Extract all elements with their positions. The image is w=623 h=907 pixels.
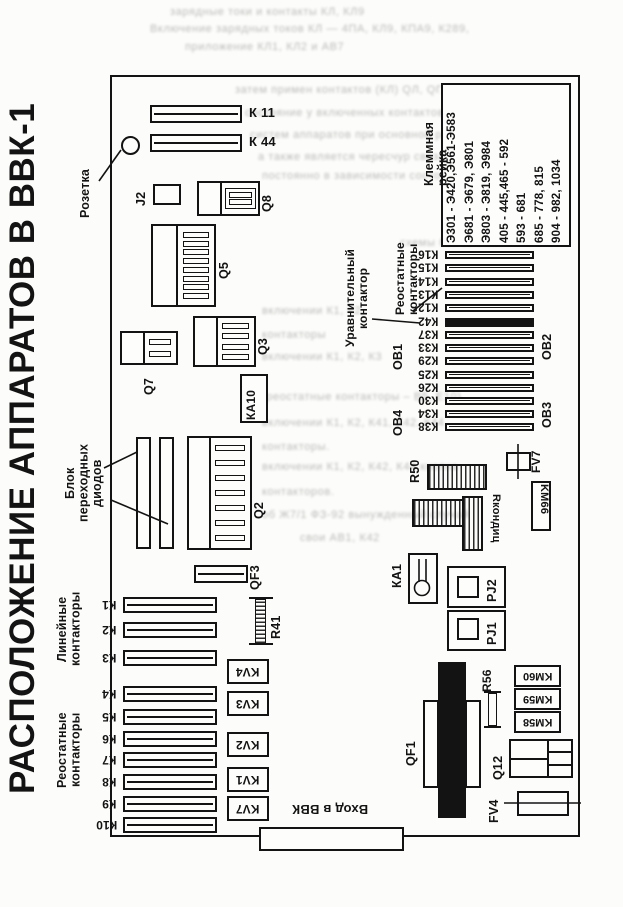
q2-label: Q2 xyxy=(253,493,269,519)
bar-label-k4: К4 xyxy=(97,687,121,700)
kv7-relay: KV7 xyxy=(227,796,269,821)
contactor-bar-k5 xyxy=(123,709,217,725)
r56-label: R56 xyxy=(481,664,498,692)
bar-label-k8: К8 xyxy=(97,775,121,788)
contactor-bar-k38 xyxy=(445,423,534,431)
qf3-component xyxy=(194,565,248,583)
bar-label-k3: К3 xyxy=(97,651,121,664)
pj1-inner-square xyxy=(457,618,479,640)
contactor-k11-bar xyxy=(150,105,242,123)
contactor-bar-k12 xyxy=(445,304,534,312)
rheostat-contactors-left-label: Реостатные контакторы xyxy=(56,702,94,798)
kv4-relay: KV4 xyxy=(227,659,269,684)
contactor-bar-k3 xyxy=(123,650,217,666)
vhod-v-bbk-block xyxy=(259,827,404,851)
bar-label-k6: К6 xyxy=(97,732,121,745)
r50-label: R50 xyxy=(409,457,426,483)
contactor-bar-k2 xyxy=(123,622,217,638)
bar-label-k5: К5 xyxy=(97,710,121,723)
pj1-label: PJ1 xyxy=(486,615,502,645)
r41-resistor xyxy=(255,599,266,644)
ob3-label: ОВ3 xyxy=(541,394,558,428)
terminal-rail-line: Э681 - Э679, Э801 xyxy=(464,87,482,243)
q3-label: Q3 xyxy=(257,329,273,355)
bar-label-k2: К2 xyxy=(97,623,121,636)
r41-label: R41 xyxy=(270,609,286,639)
r41-cap xyxy=(249,643,273,645)
contactor-bar-k29 xyxy=(445,357,534,365)
qf1-breaker-body xyxy=(438,662,466,818)
ka10-label: КА10 xyxy=(245,377,261,420)
ob4-label: ОВ4 xyxy=(392,402,409,436)
contactor-bar-k7 xyxy=(123,752,217,768)
bar-label-k34: К34 xyxy=(413,406,443,418)
contactor-bar-k37 xyxy=(445,331,534,339)
j2-label: J2 xyxy=(135,184,150,206)
kv1-relay: KV1 xyxy=(227,767,269,792)
q7-component xyxy=(120,331,178,365)
vhod-v-bbk-label: Вход в ВВК xyxy=(280,802,380,816)
q3-component xyxy=(193,316,256,367)
terminal-rail-label: Клеммная рейка xyxy=(423,90,440,186)
ka1-label: КА1 xyxy=(391,556,407,588)
bleed-through-text: приложение КЛ1, КЛ2 и АВ7 xyxy=(185,41,344,53)
bar-label-k25: К25 xyxy=(413,367,443,379)
ob2-label: ОВ2 xyxy=(541,326,558,360)
contactor-bar-k25 xyxy=(445,371,534,379)
j2-component xyxy=(153,184,181,205)
contactor-bar-k16 xyxy=(445,251,534,259)
rheostat-contactors-right-label: Реостатные контакторы xyxy=(394,238,430,320)
terminal-rail-line: 405 - 445,465 - 592 xyxy=(499,87,517,243)
pj2-label: PJ2 xyxy=(486,572,502,602)
contactor-bar-k1 xyxy=(123,597,217,613)
q5-label: Q5 xyxy=(218,253,234,279)
r56-cap xyxy=(484,726,501,728)
fv4-label: FV4 xyxy=(488,789,505,823)
socket-circle xyxy=(121,136,140,155)
km60-component: KM60 xyxy=(514,665,561,687)
rkondits-label: Rкондиц xyxy=(485,494,501,552)
contactor-bar-k33 xyxy=(445,344,534,352)
ob1-label: ОВ1 xyxy=(392,336,409,370)
rkondits-resistor xyxy=(412,499,464,527)
q12-component xyxy=(509,739,573,778)
diode-block-bar xyxy=(159,437,174,549)
r56-resistor xyxy=(488,693,497,726)
contactor-bar-k14 xyxy=(445,278,534,286)
kv3-relay: KV3 xyxy=(227,691,269,716)
contactor-bar-k9 xyxy=(123,796,217,812)
qf1-label: QF1 xyxy=(405,734,422,766)
bar-label-k37: К37 xyxy=(413,327,443,339)
qf3-label: QF3 xyxy=(249,562,265,590)
contactor-bar-k34 xyxy=(445,410,534,418)
contactor-k44-label: К 44 xyxy=(249,135,276,149)
bleed-through-text: Включение зарядных токов КЛ — 4ПА, КЛ9, … xyxy=(150,23,469,35)
qf1-side-block xyxy=(465,700,481,788)
bleed-through-text: зарядные токи и контакты КЛ, КЛ9 xyxy=(170,6,365,18)
bar-label-k33: К33 xyxy=(413,340,443,352)
terminal-rail-box: Э301 - Э420,Э561-Э583 Э681 - Э679, Э801 … xyxy=(441,83,571,247)
q8-label: Q8 xyxy=(261,186,277,212)
contactor-bar-k30 xyxy=(445,397,534,405)
bar-label-k30: К30 xyxy=(413,393,443,405)
socket-label: Розетка xyxy=(79,152,96,218)
terminal-rail-line: 904 - 982, 1034 xyxy=(551,87,569,243)
km66-label: KM66 xyxy=(534,484,549,528)
q7-label: Q7 xyxy=(143,369,159,395)
diode-block-bar xyxy=(136,437,151,549)
rkondits-resistor xyxy=(462,496,483,551)
contactor-bar-k42-equalizing xyxy=(445,318,534,327)
contactor-bar-k26 xyxy=(445,384,534,392)
bar-label-k29: К29 xyxy=(413,353,443,365)
fv4-fuse xyxy=(517,791,569,816)
equalizing-contactor-label: Уравнительный контактор xyxy=(344,240,380,356)
ka1-component xyxy=(408,553,438,604)
contactor-bar-k15 xyxy=(445,264,534,272)
contactor-k11-label: К 11 xyxy=(249,106,275,120)
qf1-side-block xyxy=(423,700,439,788)
scanned-diagram-page: зарядные токи и контакты КЛ, КЛ9 Включен… xyxy=(0,0,623,907)
page-title: РАСПОЛОЖЕНИЕ АППАРАТОВ В ВВК-1 xyxy=(4,86,48,794)
km59-component: KM59 xyxy=(514,688,561,710)
contactor-bar-k8 xyxy=(123,774,217,790)
bar-label-k1: К1 xyxy=(97,598,121,611)
r50-resistor xyxy=(427,464,487,490)
q8-component xyxy=(197,181,260,216)
contactor-bar-k13 xyxy=(445,291,534,299)
contactor-k44-bar xyxy=(150,134,242,152)
q5-component xyxy=(151,224,216,307)
bar-label-k9: К9 xyxy=(97,797,121,810)
bar-label-k10: К10 xyxy=(93,818,121,831)
fv7-fuse xyxy=(506,452,531,471)
contactor-bar-k10 xyxy=(123,817,217,833)
fv7-label: FV7 xyxy=(530,445,546,473)
pj2-inner-square xyxy=(457,576,479,598)
kv2-relay: KV2 xyxy=(227,732,269,757)
q12-label: Q12 xyxy=(492,750,509,780)
diode-block-label: Блок переходных диодов xyxy=(64,428,104,538)
km58-component: KM58 xyxy=(514,711,561,733)
q2-component xyxy=(187,436,252,550)
linear-contactors-label: Линейные контакторы xyxy=(56,590,94,668)
bar-label-k38: К38 xyxy=(413,419,443,431)
terminal-rail-line: 685 - 778, 815 xyxy=(534,87,552,243)
bar-label-k26: К26 xyxy=(413,380,443,392)
contactor-bar-k4 xyxy=(123,686,217,702)
contactor-bar-k6 xyxy=(123,731,217,747)
terminal-rail-line: Э803 - Э819, Э984 xyxy=(481,87,499,243)
bar-label-k7: К7 xyxy=(97,753,121,766)
terminal-rail-line: 593 - 681 xyxy=(516,87,534,243)
